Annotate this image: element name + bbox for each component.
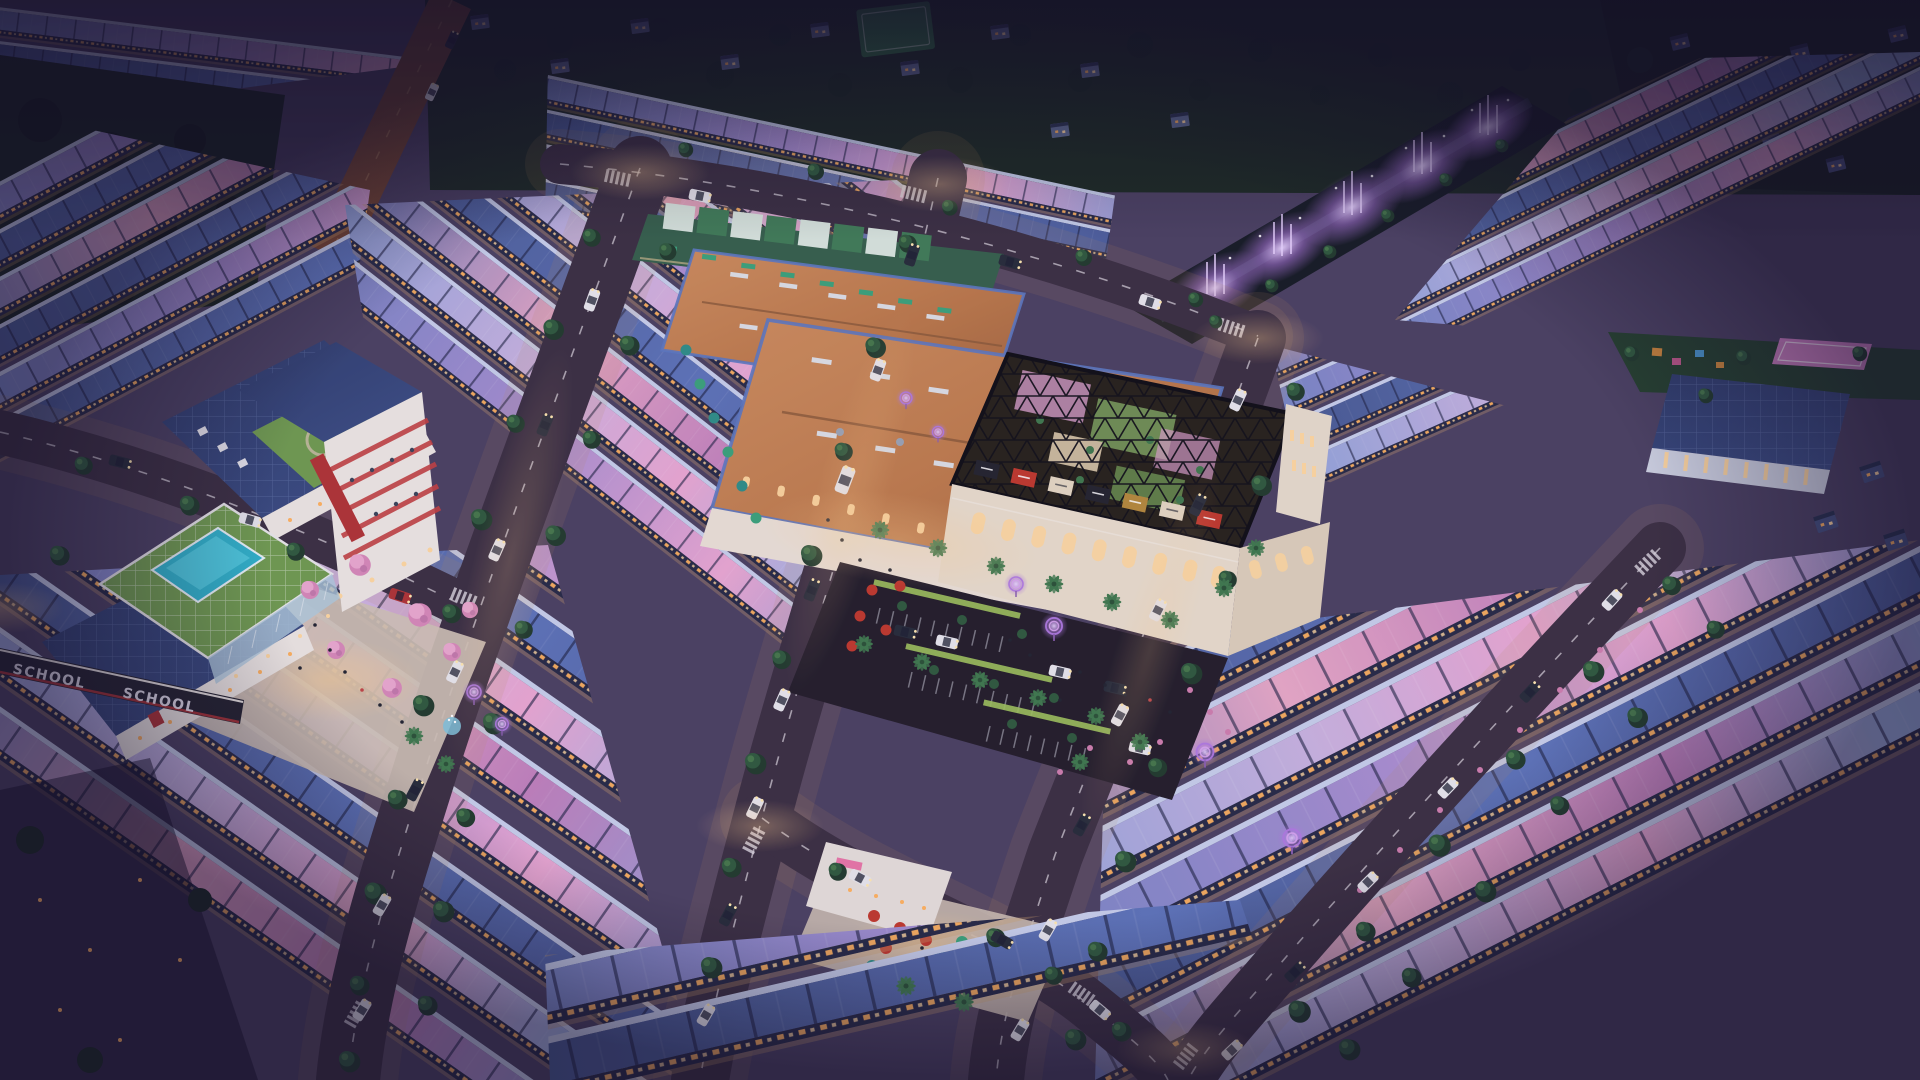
render-canvas: SCHOOL SCHOOL bbox=[0, 0, 1920, 1080]
aerial-township-render: SCHOOL SCHOOL bbox=[0, 0, 1920, 1080]
vignette bbox=[0, 0, 1920, 1080]
